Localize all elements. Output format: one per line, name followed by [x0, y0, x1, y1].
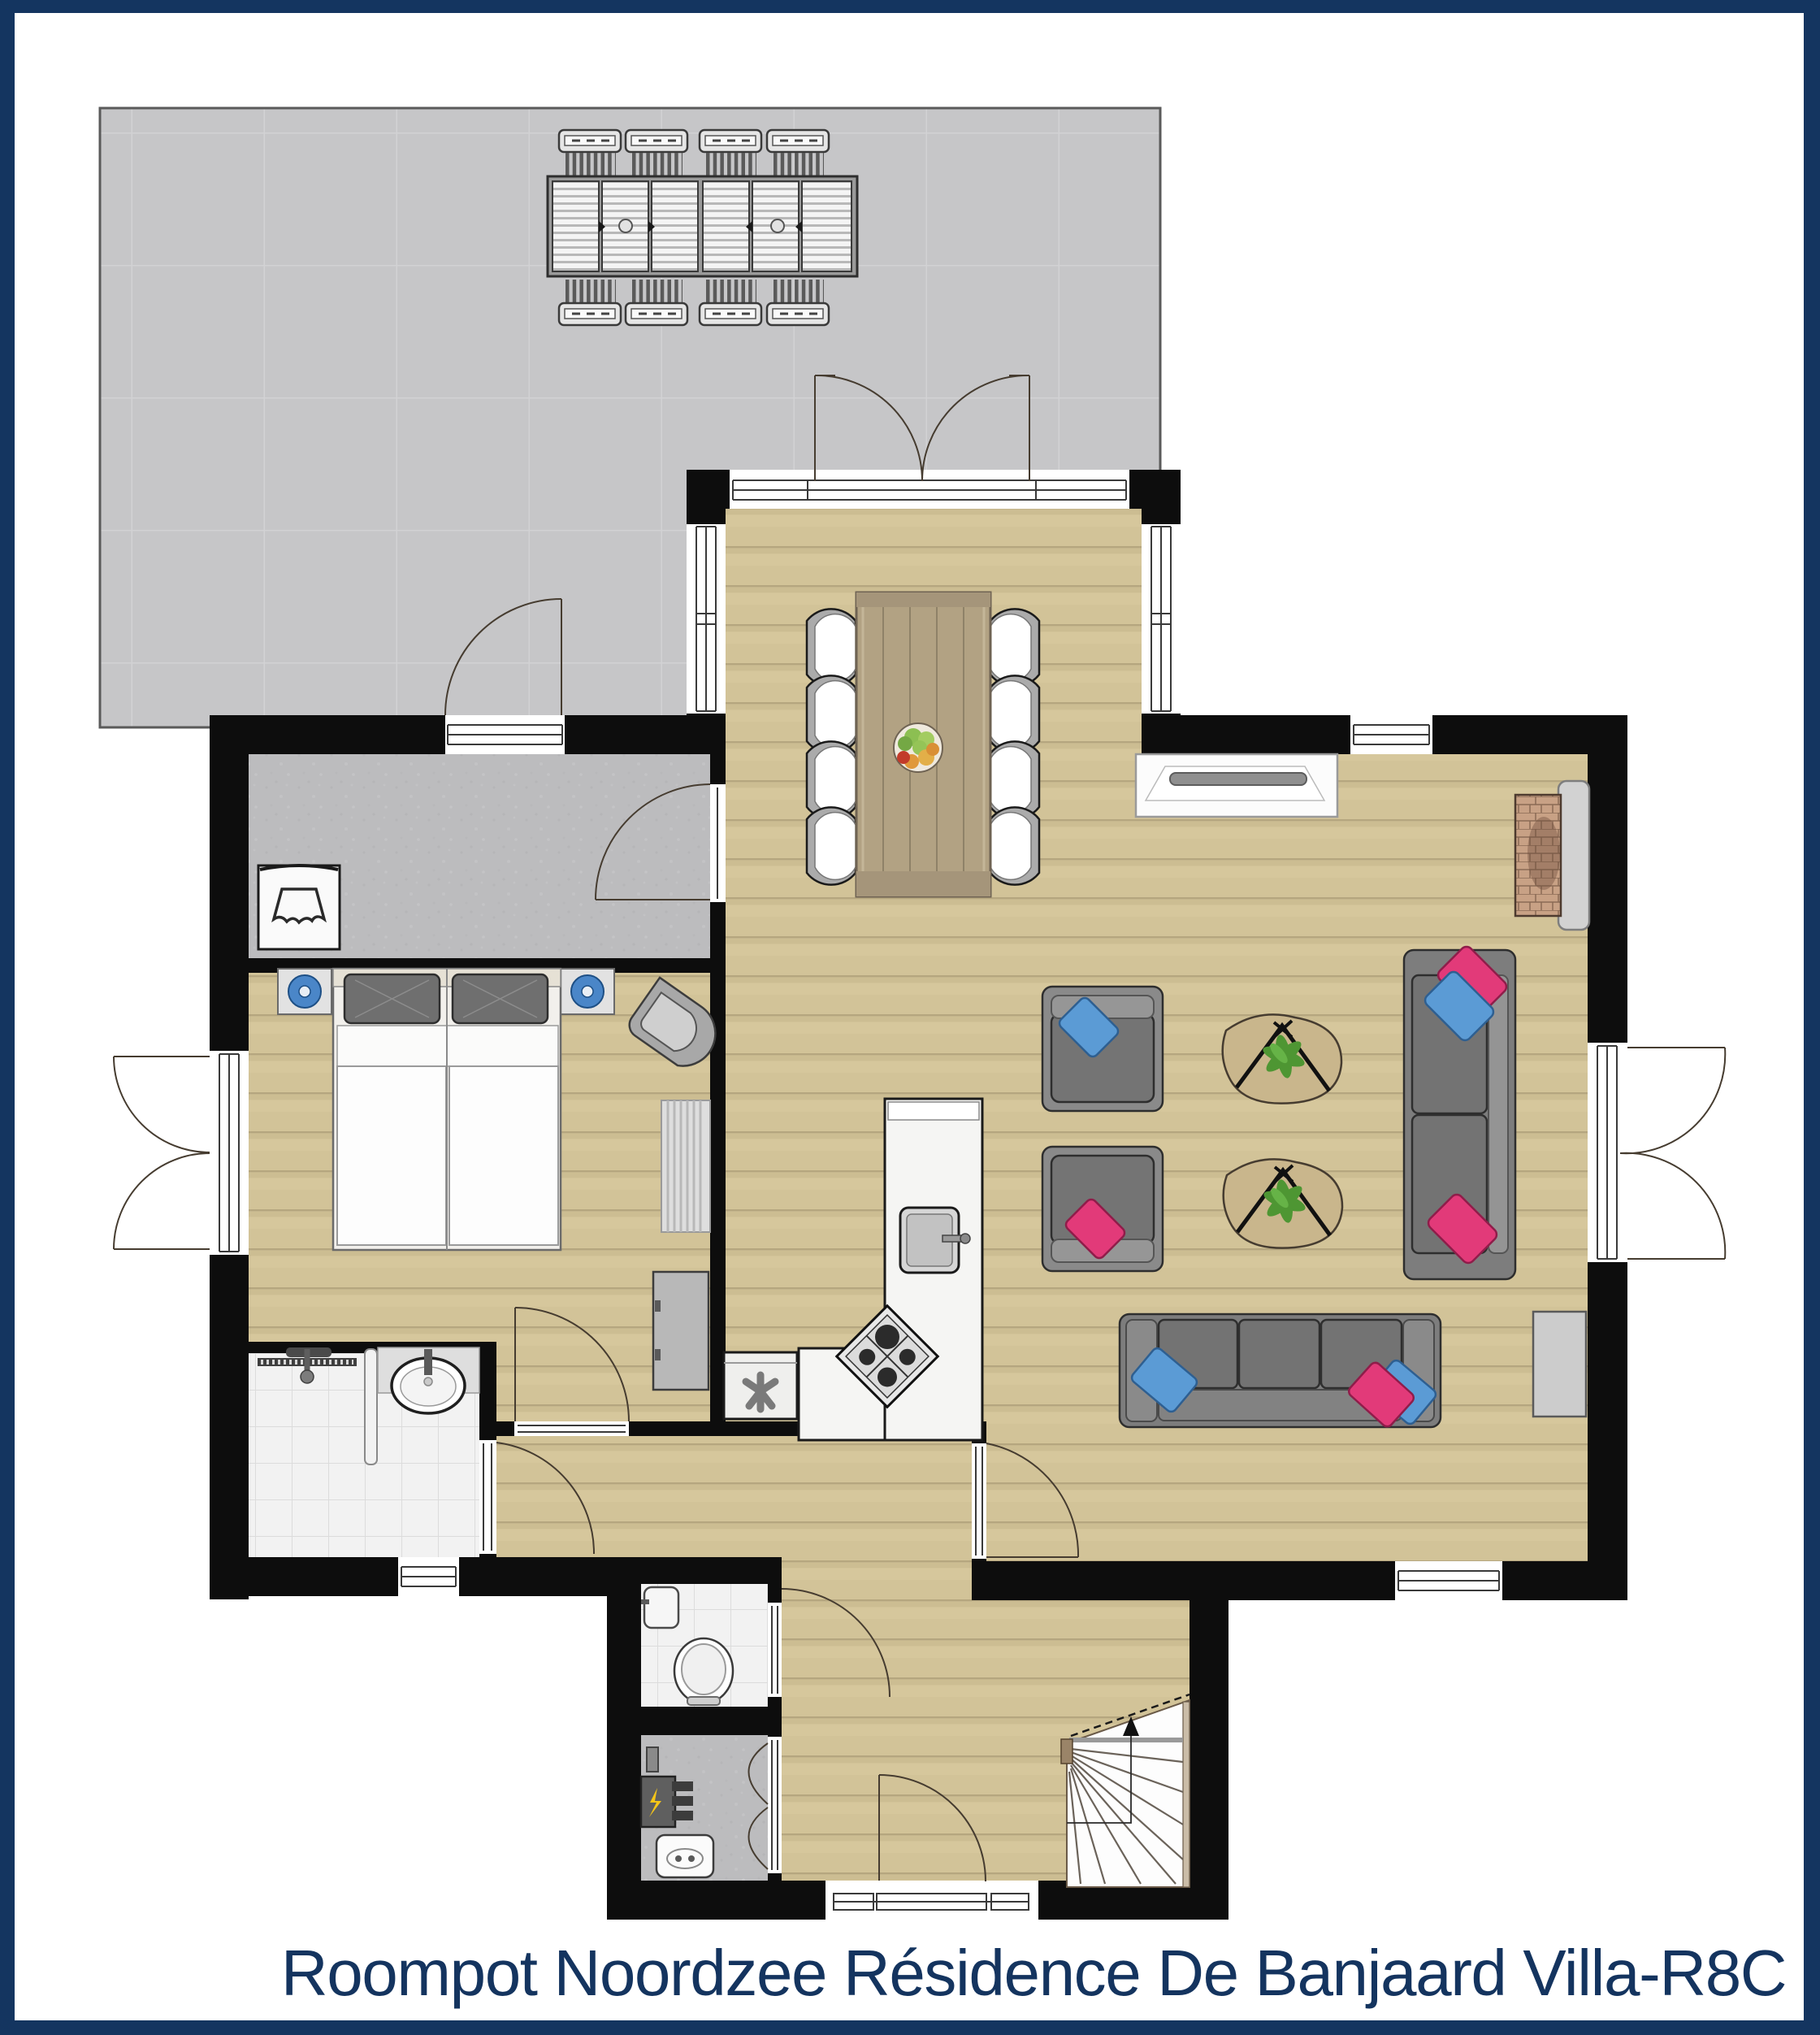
svg-text:Roompot Noordzee Résidence De: Roompot Noordzee Résidence De Banjaard V…	[281, 1937, 1786, 2009]
